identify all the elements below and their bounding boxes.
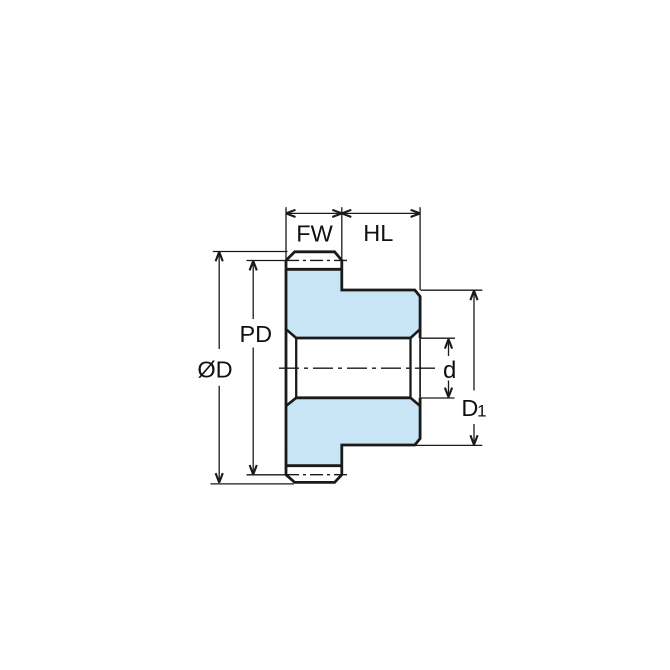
svg-text:HL: HL <box>363 220 393 246</box>
svg-text:d: d <box>443 357 456 384</box>
svg-text:FW: FW <box>296 221 333 247</box>
svg-text:ØD: ØD <box>197 356 232 382</box>
svg-text:PD: PD <box>239 321 272 347</box>
